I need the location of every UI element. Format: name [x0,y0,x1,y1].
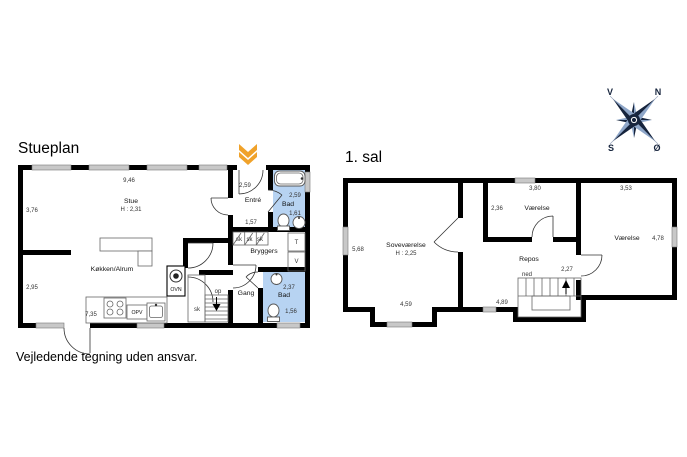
toilet-icon-2 [268,304,280,322]
stue-ceiling-label: H : 2,31 [120,207,142,213]
sovevaerelse-dim-bottom: 4,59 [400,302,412,308]
entre-dim-top: 2,59 [239,183,251,189]
oven-icon: OVN [167,266,185,296]
repos-dim: 4,89 [496,300,508,306]
disclaimer-text: Vejledende tegning uden ansvar. [16,350,197,364]
kitchen-sink-icon [147,303,165,321]
koekken-dim-bottom: 7,35 [85,312,97,318]
vaerelse-mid-dim-top: 3,80 [529,186,541,192]
bad-bottom-room-label: Bad [278,292,290,299]
bad-bottom-dim1: 2,37 [283,285,295,291]
first-floor-windows [343,178,677,327]
stairs-down-dim: 2,27 [561,267,573,273]
stairs-down-icon [518,278,581,317]
dishwasher-icon: OPV [127,305,147,319]
toilet-icon [278,214,290,231]
bad-bottom-dim2: 1,56 [285,309,297,315]
compass-rose-icon: V N S Ø [607,87,661,153]
stue-dim-left: 3,76 [26,208,38,214]
closet-sk1-label: sk [236,237,243,243]
sovevaerelse-room-label: Soveværelse [386,242,426,249]
entrance-opening [237,165,266,171]
bryggers-room-label: Bryggers [250,248,278,255]
gang-room-label: Gang [238,290,255,297]
sink-icon [293,217,305,229]
compass-east-label: Ø [653,143,660,153]
stue-dim-top: 9,46 [123,178,135,184]
stue-room-label: Stue [124,198,138,205]
floorplan-image: Stueplan [0,0,687,457]
closet-sk2-label: sk [247,237,254,243]
stairs-up-label: op [215,289,222,295]
bad-top-dim1: 2,59 [289,193,301,199]
compass-west-label: V [607,87,613,97]
stove-icon [104,298,126,318]
bathtub-icon [275,171,306,186]
sovevaerelse-ceiling-label: H : 2,25 [395,251,417,257]
vaerelse-mid-dim-left: 2,36 [491,206,503,212]
dishwasher-label: OPV [132,310,143,316]
hall-closet-label: sk [194,307,201,313]
washer-label: V [294,259,298,265]
bad-top-dim2: 1,61 [289,211,301,217]
dryer-label: T [295,240,299,246]
koekken-dim-left: 2,95 [26,285,38,291]
compass-south-label: S [608,143,614,153]
sovevaerelse-dim-left: 5,68 [352,247,364,253]
vaerelse-right-room-label: Værelse [614,235,640,242]
stairs-down-label: ned [522,272,532,278]
oven-label: OVN [170,287,181,293]
first-floor-walls [343,178,677,327]
closet-sk3-label: sk [257,237,264,243]
stairs-up-icon [205,295,228,322]
vaerelse-right-dim-right: 4,78 [652,236,664,242]
vaerelse-mid-room-label: Værelse [524,205,550,212]
sink-icon-2 [271,274,282,285]
first-floor-title: 1. sal [345,149,382,166]
entre-dim-bottom: 1,57 [245,220,257,226]
compass-north-label: N [655,87,662,97]
repos-room-label: Repos [519,256,539,263]
stueplan-floorplan: Stueplan [18,140,310,354]
vaerelse-right-dim-top: 3,53 [620,186,632,192]
bad-top-room-label: Bad [282,201,294,208]
ground-floor-title: Stueplan [18,140,79,157]
first-floor-floorplan: 1. sal [343,149,677,327]
entrance-marker-icon [239,144,257,165]
entre-room-label: Entré [245,197,261,204]
koekken-room-label: Køkken/Alrum [91,266,134,273]
